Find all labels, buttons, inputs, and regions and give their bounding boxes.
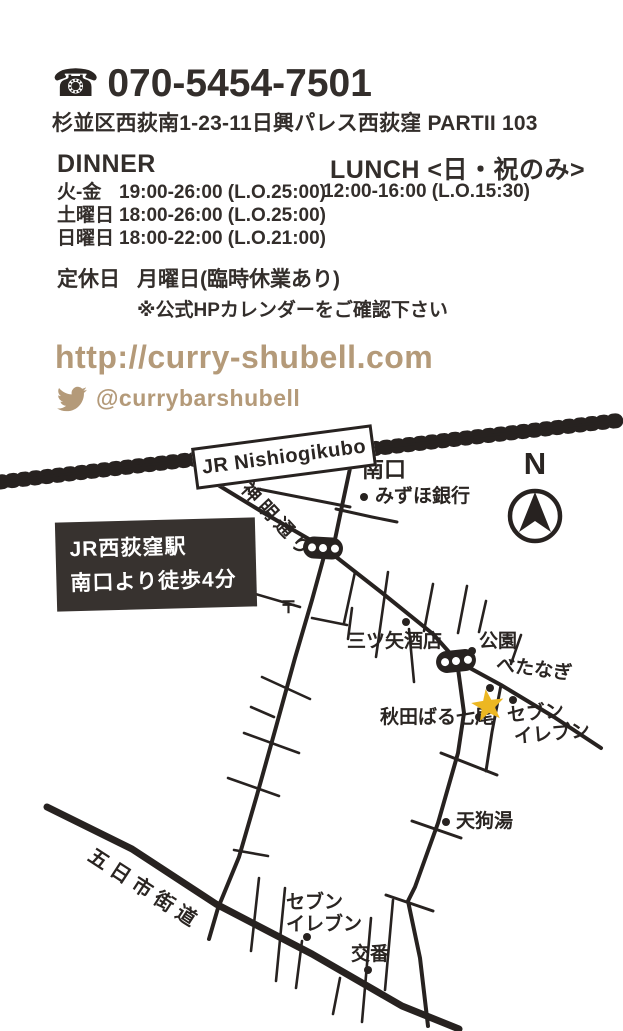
access-box: JR西荻窪駅 南口より徒歩4分 <box>55 517 257 611</box>
map-roads <box>205 459 601 1026</box>
access-line2: 南口より徒歩4分 <box>70 562 257 600</box>
side-roads <box>258 489 501 911</box>
alley-crosses <box>228 572 521 1022</box>
access-line1: JR西荻窪駅 <box>69 528 256 566</box>
traffic-light-icon <box>302 536 343 560</box>
itsukaichi-road <box>47 807 459 1029</box>
map-canvas <box>0 0 623 1031</box>
compass-icon <box>510 491 560 541</box>
